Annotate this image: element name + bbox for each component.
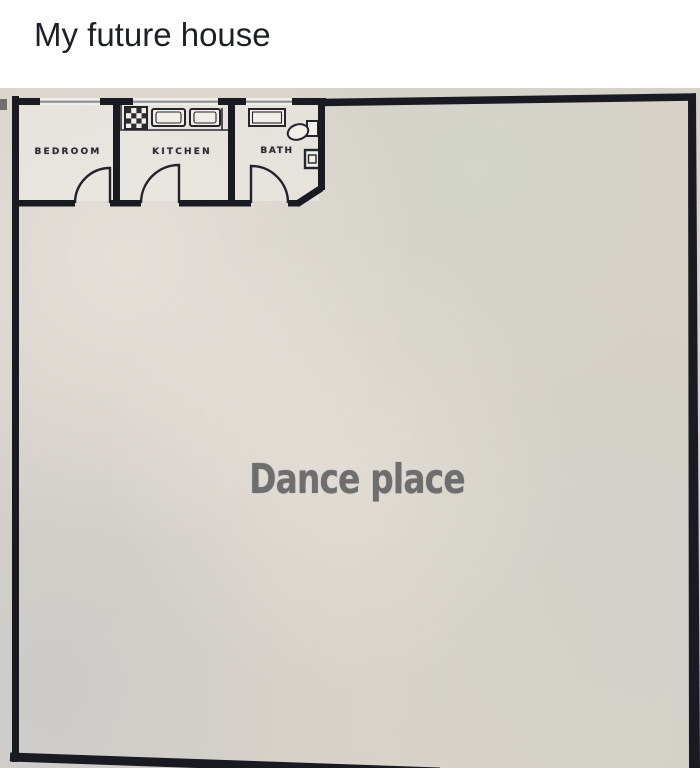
kitchen-label: KITCHEN xyxy=(152,147,212,157)
stove-icon xyxy=(125,107,147,129)
photo-edge-smudge xyxy=(0,99,7,110)
left-wall xyxy=(12,96,19,762)
dance-area-top-wall xyxy=(319,97,695,103)
kitchen-sink-icon xyxy=(152,109,220,126)
floorplan-drawing xyxy=(0,88,700,768)
bedroom-window-icon xyxy=(40,98,100,105)
bottom-wall xyxy=(10,757,440,768)
meme-caption: My future house xyxy=(34,17,271,53)
kitchen-window-icon xyxy=(133,98,218,105)
kitchen-bath-wall xyxy=(228,102,235,202)
caption-bar: My future house xyxy=(0,0,700,88)
windows xyxy=(40,98,292,105)
bedroom-label: BEDROOM xyxy=(34,147,101,157)
right-wall xyxy=(688,93,700,768)
bath-window-icon xyxy=(246,98,292,105)
bath-sink-icon xyxy=(249,109,285,126)
bedroom-kitchen-wall xyxy=(113,102,120,202)
dance-place-label: Dance place xyxy=(249,455,465,503)
meme-image: My future house xyxy=(0,0,700,768)
shower-drain-icon xyxy=(305,150,320,168)
bath-right-wall xyxy=(318,102,325,190)
floorplan-photo: BEDROOM KITCHEN BATH Dance place xyxy=(0,88,700,768)
bath-label: BATH xyxy=(260,146,293,156)
